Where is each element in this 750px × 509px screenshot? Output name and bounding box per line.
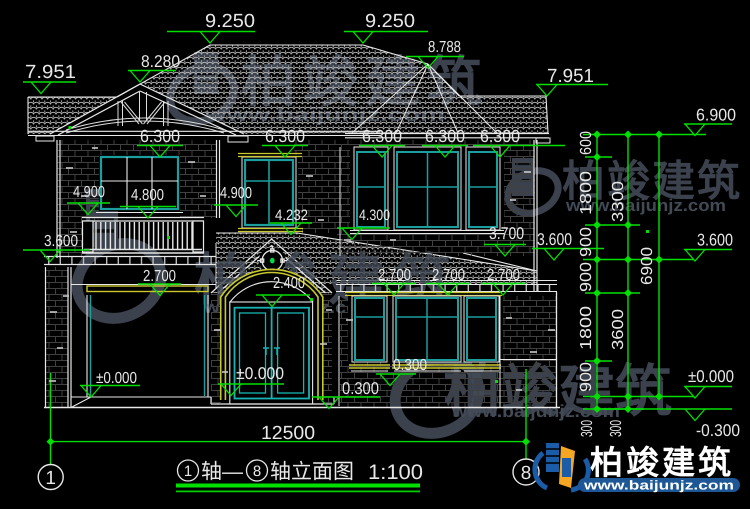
svg-text:6.900: 6.900 [696, 106, 736, 125]
svg-text:轴立面图: 轴立面图 [270, 461, 354, 484]
svg-text:6.300: 6.300 [140, 126, 180, 146]
svg-text:1: 1 [184, 463, 192, 480]
svg-text:筑: 筑 [615, 360, 672, 424]
svg-text:8.280: 8.280 [141, 52, 180, 71]
svg-text:±0.000: ±0.000 [96, 370, 137, 387]
svg-text:2.700: 2.700 [487, 267, 520, 284]
svg-text:www.baijunjz.com: www.baijunjz.com [583, 478, 734, 493]
svg-text:4.800: 4.800 [131, 187, 164, 204]
svg-text:900: 900 [578, 362, 595, 392]
svg-text:3.600: 3.600 [697, 231, 733, 250]
svg-text:600: 600 [578, 131, 595, 155]
svg-text:9.250: 9.250 [205, 11, 255, 32]
svg-text:3600: 3600 [610, 309, 627, 350]
svg-text:6900: 6900 [639, 247, 656, 285]
svg-text:4.900: 4.900 [73, 184, 105, 201]
svg-text:2.700: 2.700 [143, 268, 176, 285]
svg-text:300: 300 [608, 420, 625, 437]
svg-text:6.300: 6.300 [425, 126, 465, 146]
svg-text:1800: 1800 [578, 171, 595, 215]
svg-text:6.300: 6.300 [362, 126, 402, 146]
svg-text:-0.300: -0.300 [696, 421, 740, 440]
svg-text:柏竣建筑: 柏竣建筑 [590, 444, 734, 481]
svg-text:轴—: 轴— [201, 461, 243, 484]
svg-text:8: 8 [521, 463, 532, 484]
svg-text:0.300: 0.300 [342, 379, 379, 398]
svg-text:4.232: 4.232 [275, 207, 308, 224]
svg-text:1: 1 [45, 468, 56, 489]
svg-text:3.700: 3.700 [489, 224, 524, 243]
svg-text:4.900: 4.900 [220, 185, 252, 202]
svg-text:12500: 12500 [261, 423, 315, 444]
svg-text:0.300: 0.300 [393, 357, 427, 374]
svg-text:8.788: 8.788 [428, 39, 461, 56]
svg-text:2.700: 2.700 [378, 267, 411, 284]
svg-text:300: 300 [579, 420, 596, 437]
svg-text:6.300: 6.300 [480, 126, 520, 146]
svg-text:7.951: 7.951 [25, 62, 76, 83]
svg-text:9.250: 9.250 [365, 11, 415, 32]
svg-text:±0.000: ±0.000 [236, 364, 284, 383]
svg-text:1800: 1800 [578, 306, 595, 350]
svg-text:2.700: 2.700 [432, 267, 465, 284]
svg-text:900: 900 [578, 262, 595, 292]
svg-text:3.600: 3.600 [44, 233, 78, 250]
svg-text:3300: 3300 [610, 181, 627, 222]
svg-text:8: 8 [253, 463, 261, 480]
svg-text:4.300: 4.300 [359, 207, 390, 224]
svg-text:900: 900 [578, 227, 595, 257]
svg-text:6.300: 6.300 [265, 126, 305, 146]
svg-text:±0.000: ±0.000 [688, 367, 734, 386]
svg-text:2.400: 2.400 [273, 275, 305, 292]
svg-text:1:100: 1:100 [368, 461, 423, 484]
svg-text:3.600: 3.600 [537, 230, 572, 249]
